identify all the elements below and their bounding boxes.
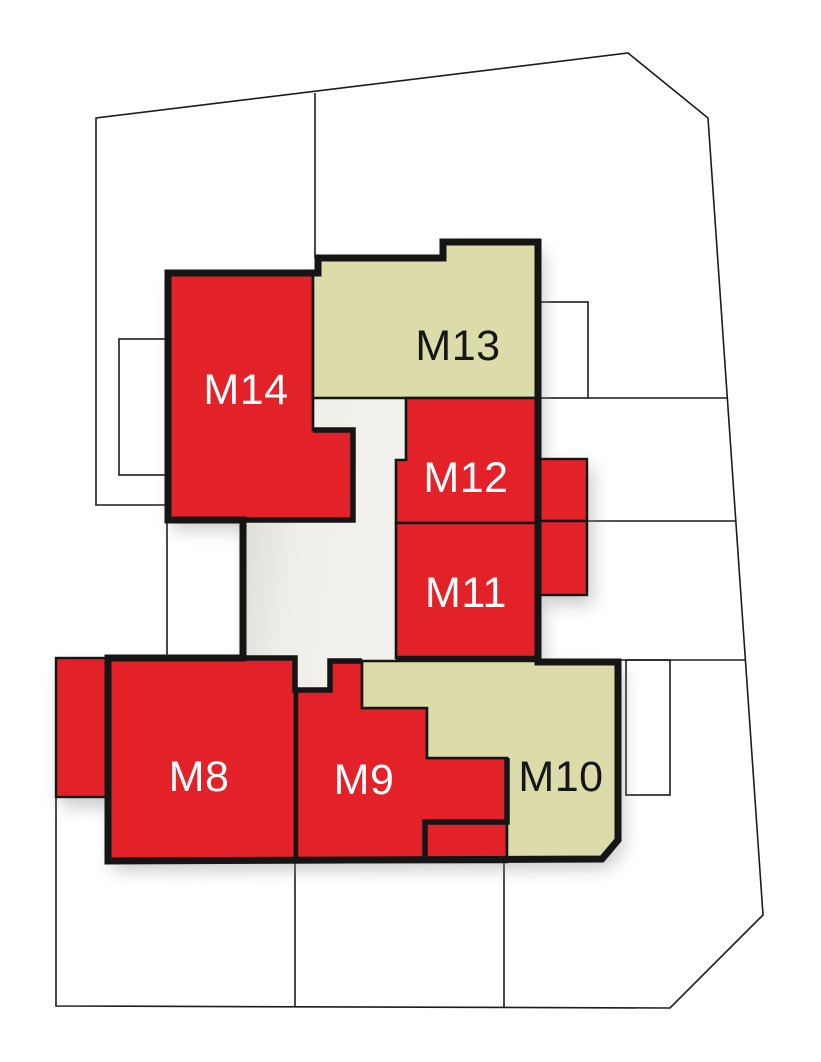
unit-m13-label: M13	[415, 322, 500, 370]
unit-m10-label: M10	[518, 753, 603, 801]
annex-right-of-m12	[540, 459, 587, 521]
site-plan-canvas: M14 M13 M12 M11 M8 M9 M10	[0, 0, 821, 1062]
unit-m8-label: M8	[169, 753, 230, 801]
annex-left-of-m8	[56, 658, 108, 797]
annex-right-of-m11	[540, 521, 587, 595]
unit-m11-label: M11	[425, 569, 507, 617]
site-plan-page: M14 M13 M12 M11 M8 M9 M10	[0, 0, 821, 1062]
unit-m13-shape[interactable]	[313, 242, 538, 398]
unit-m9-label: M9	[334, 756, 395, 804]
unit-m12-label: M12	[423, 454, 508, 502]
unit-m14-label: M14	[203, 366, 288, 414]
